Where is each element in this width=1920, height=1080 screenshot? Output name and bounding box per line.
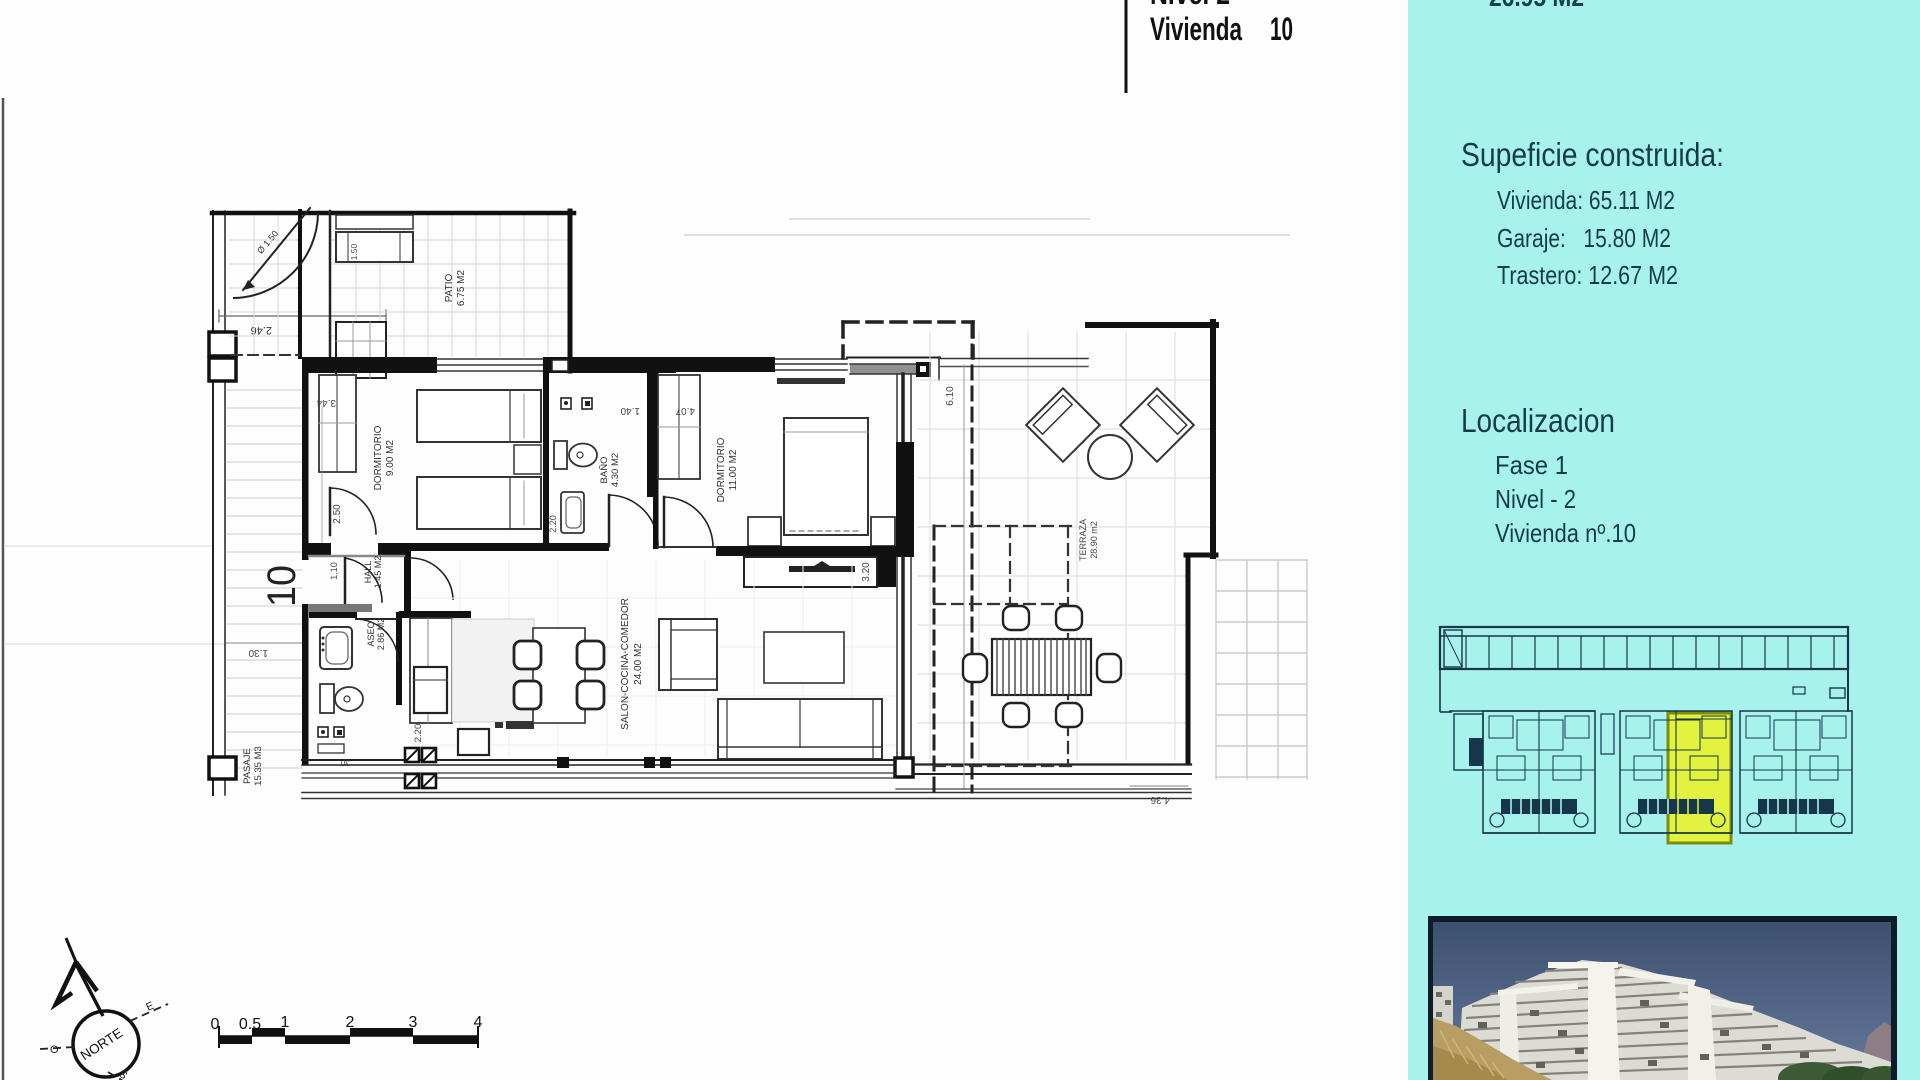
svg-text:3.44: 3.44 — [316, 397, 336, 408]
svg-text:2: 2 — [346, 1014, 355, 1031]
svg-text:1.40: 1.40 — [620, 405, 640, 416]
svg-text:11.00 M2: 11.00 M2 — [728, 449, 739, 490]
svg-text:10: 10 — [260, 565, 304, 607]
svg-text:1.10: 1.10 — [329, 562, 339, 580]
svg-text:BAÑO: BAÑO — [599, 457, 610, 484]
svg-text:Nivel - 2: Nivel - 2 — [1495, 484, 1576, 514]
svg-text:15.35 M3: 15.35 M3 — [253, 746, 264, 786]
svg-text:0.5: 0.5 — [239, 1016, 261, 1033]
svg-text:DORMITORIO: DORMITORIO — [373, 425, 384, 490]
svg-text:SALON-COCINA-COMEDOR: SALON-COCINA-COMEDOR — [620, 598, 631, 730]
svg-text:1: 1 — [281, 1014, 290, 1031]
svg-text:4.30 M2: 4.30 M2 — [610, 453, 621, 487]
svg-text:O: O — [50, 1044, 59, 1056]
svg-text:1.30: 1.30 — [248, 647, 268, 658]
svg-text:2.20: 2.20 — [548, 515, 558, 533]
svg-text:Vivienda nº.10: Vivienda nº.10 — [1495, 518, 1636, 548]
svg-text:3.20: 3.20 — [861, 562, 872, 582]
svg-text:26.95 M2: 26.95 M2 — [1489, 0, 1584, 12]
svg-text:2.50: 2.50 — [332, 504, 343, 524]
svg-text:6.10: 6.10 — [945, 386, 956, 406]
svg-text:3: 3 — [409, 1014, 418, 1031]
svg-text:PATIO: PATIO — [444, 274, 455, 303]
svg-text:10: 10 — [1270, 11, 1293, 47]
svg-text:Trastero: 12.67 M2: Trastero: 12.67 M2 — [1497, 260, 1678, 290]
svg-text:Nivel 2: Nivel 2 — [1150, 0, 1230, 11]
svg-text:1.50: 1.50 — [349, 243, 359, 260]
svg-text:28.90 m2: 28.90 m2 — [1089, 521, 1099, 559]
svg-text:Vivienda: Vivienda — [1150, 11, 1242, 47]
svg-text:HALL: HALL — [363, 561, 373, 584]
svg-text:Localizacion: Localizacion — [1461, 402, 1615, 439]
svg-text:9.00 M2: 9.00 M2 — [385, 439, 396, 476]
svg-text:ASEO: ASEO — [366, 621, 376, 646]
svg-text:6.75 M2: 6.75 M2 — [456, 269, 467, 306]
svg-text:PASAJE: PASAJE — [242, 748, 253, 784]
svg-text:Fase 1: Fase 1 — [1495, 450, 1568, 480]
svg-text:TERRAZA: TERRAZA — [1078, 519, 1088, 561]
svg-text:1.45 M2: 1.45 M2 — [373, 556, 383, 589]
svg-text:Supeficie construida:: Supeficie construida: — [1461, 136, 1724, 173]
svg-text:4.36: 4.36 — [1150, 794, 1170, 805]
svg-text:0: 0 — [211, 1016, 220, 1033]
svg-text:24.00 M2: 24.00 M2 — [633, 643, 644, 685]
svg-text:DORMITORIO: DORMITORIO — [716, 437, 727, 502]
svg-text:2.86 M2: 2.86 M2 — [376, 618, 386, 651]
svg-text:Vivienda: 65.11 M2: Vivienda: 65.11 M2 — [1497, 185, 1675, 215]
svg-text:4: 4 — [474, 1014, 483, 1031]
svg-text:Garaje: 15.80 M2: Garaje: 15.80 M2 — [1497, 223, 1671, 253]
svg-text:2.20: 2.20 — [413, 724, 424, 743]
svg-text:4.07: 4.07 — [675, 405, 695, 416]
